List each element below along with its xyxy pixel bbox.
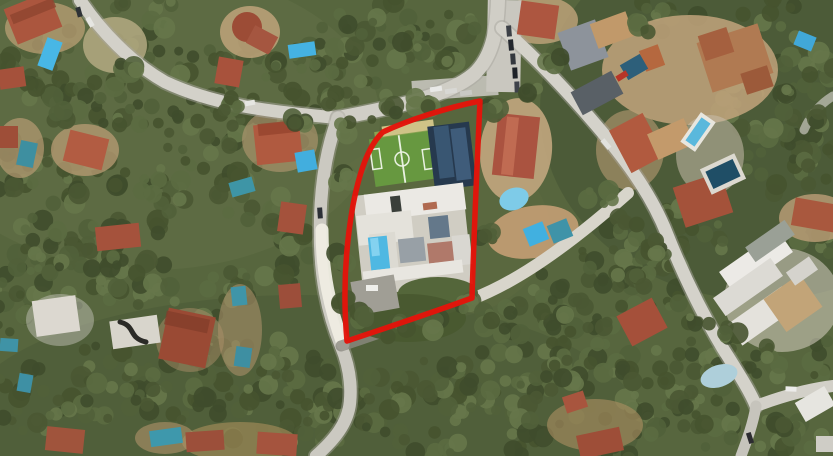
parked-car	[510, 53, 516, 64]
house-roof	[256, 432, 297, 456]
house-roof	[277, 201, 307, 234]
screenshot-root	[0, 0, 833, 456]
house-roof	[185, 430, 224, 453]
swimming-pool	[294, 149, 317, 172]
swimming-pool	[234, 346, 253, 368]
house-roof	[0, 66, 26, 89]
house-roof	[45, 426, 85, 454]
house-roof	[95, 223, 141, 251]
gray-cube-roof	[428, 215, 450, 239]
house-roof	[0, 126, 18, 148]
gray-terrace	[398, 237, 426, 264]
parked-car	[508, 39, 514, 50]
swimming-pool	[0, 338, 18, 352]
house-roof	[214, 57, 243, 88]
house-roof	[517, 1, 559, 40]
house-roof	[278, 283, 302, 309]
white-villa	[32, 295, 81, 337]
parked-car	[512, 67, 518, 78]
parked-car	[785, 386, 796, 391]
satellite-map-canvas[interactable]	[0, 0, 833, 456]
swimming-pool	[231, 286, 248, 306]
parked-car	[506, 25, 512, 36]
car-on-road	[317, 207, 323, 218]
gray-building	[816, 436, 833, 452]
white-car	[366, 285, 378, 291]
